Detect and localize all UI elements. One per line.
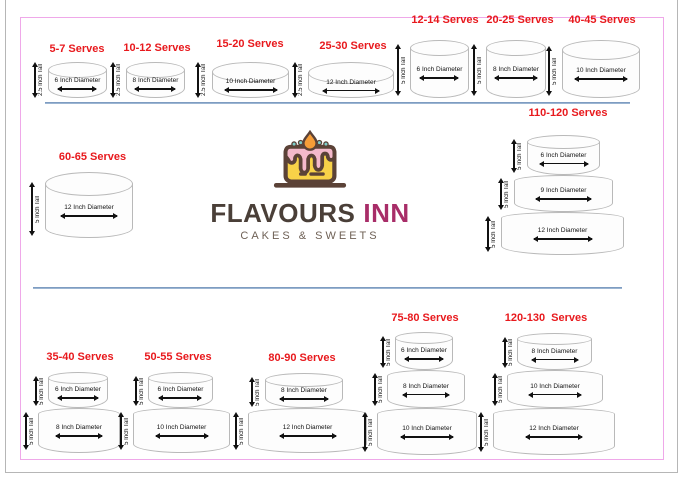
serves-title: 80-90 Serves [260, 352, 344, 364]
height-label: 5 Inch Tall [487, 216, 497, 252]
diameter-label: 6 Inch Diameter [401, 347, 447, 360]
height-arrow-icon [251, 381, 253, 403]
height-text: 2.5 Inch Tall [298, 64, 304, 96]
cake-tier: 8 Inch Diameter [387, 370, 465, 408]
height-arrow-icon [35, 380, 37, 402]
diameter-text: 8 Inch Diameter [403, 383, 449, 391]
cake-tier: 6 Inch Diameter [48, 378, 108, 408]
height-arrow-icon [294, 66, 296, 94]
diameter-arrow-icon [156, 435, 208, 437]
cake-tier: 10 Inch Diameter [562, 50, 640, 98]
diameter-text: 8 Inch Diameter [133, 77, 179, 85]
diameter-text: 6 Inch Diameter [541, 152, 587, 160]
diameter-arrow-icon [159, 397, 201, 399]
diameter-text: 12 Inch Diameter [538, 227, 588, 235]
diameter-label: 6 Inch Diameter [417, 66, 463, 79]
diameter-label: 6 Inch Diameter [158, 386, 204, 399]
logo-berry [317, 141, 321, 145]
serves-title: 15-20 Serves [205, 38, 295, 50]
height-text: 5 Inch Tall [498, 376, 504, 403]
height-arrow-icon [382, 340, 384, 364]
diameter-label: 12 Inch Diameter [534, 227, 592, 240]
diameter-text: 12 Inch Diameter [529, 425, 579, 433]
diameter-label: 12 Inch Diameter [526, 425, 582, 438]
height-text: 5 Inch Tall [378, 376, 384, 403]
diameter-label: 8 Inch Diameter [532, 348, 578, 361]
serves-title: 5-7 Serves [38, 43, 116, 55]
height-label: 5 Inch Tall [251, 377, 261, 407]
logo-berry [324, 142, 328, 146]
diameter-arrow-icon [540, 163, 588, 165]
diameter-text: 6 Inch Diameter [55, 386, 101, 394]
height-arrow-icon [494, 377, 496, 402]
height-arrow-icon [112, 66, 114, 94]
diameter-label: 10 Inch Diameter [575, 67, 627, 80]
height-text: 2.5 Inch Tall [116, 64, 122, 96]
serves-title: 75-80 Serves [383, 312, 467, 324]
diameter-text: 8 Inch Diameter [56, 424, 102, 432]
diameter-text: 10 Inch Diameter [226, 78, 276, 86]
height-text: 5 Inch Tall [239, 418, 245, 445]
serves-title: 20-25 Serves [475, 14, 565, 26]
height-label: 2.5 Inch Tall [294, 62, 304, 98]
height-label: 5 Inch Tall [494, 373, 504, 406]
height-label: 5 Inch Tall [500, 178, 510, 210]
height-text: 5 Inch Tall [491, 221, 497, 248]
diameter-label: 8 Inch Diameter [133, 77, 179, 90]
cake-tier: 10 Inch Diameter [507, 370, 603, 408]
divider-line-top [45, 102, 630, 104]
height-text: 5 Inch Tall [29, 418, 35, 445]
height-arrow-icon [548, 50, 550, 92]
height-text: 5 Inch Tall [552, 58, 558, 85]
height-label: 5 Inch Tall [135, 376, 145, 406]
height-arrow-icon [473, 48, 475, 92]
logo-candle-flame [303, 132, 316, 150]
cake-tier: 8 Inch Diameter [265, 380, 343, 408]
diameter-arrow-icon [58, 397, 98, 399]
diameter-label: 10 Inch Diameter [156, 424, 208, 437]
height-label: 2.5 Inch Tall [34, 62, 44, 98]
height-label: 5 Inch Tall [364, 412, 374, 452]
height-text: 5 Inch Tall [139, 378, 145, 405]
cake-tier: 6 Inch Diameter [395, 338, 453, 370]
flavours-inn-logo-icon [262, 130, 358, 190]
height-arrow-icon [397, 48, 399, 92]
diameter-arrow-icon [58, 88, 96, 90]
diameter-arrow-icon [529, 394, 581, 396]
cake-tier: 8 Inch Diameter [126, 70, 185, 98]
height-text: 5 Inch Tall [508, 339, 514, 366]
serves-title: 40-45 Serves [557, 14, 647, 26]
height-text: 5 Inch Tall [484, 419, 490, 446]
height-label: 5 Inch Tall [548, 46, 558, 96]
height-arrow-icon [364, 416, 366, 448]
diameter-label: 8 Inch Diameter [403, 383, 449, 396]
height-label: 5 Inch Tall [374, 373, 384, 406]
height-arrow-icon [25, 416, 27, 446]
diameter-arrow-icon [575, 78, 627, 80]
height-text: 5 Inch Tall [477, 57, 483, 84]
diameter-text: 8 Inch Diameter [532, 348, 578, 356]
cake-tier: 6 Inch Diameter [148, 378, 213, 408]
height-label: 5 Inch Tall [35, 376, 45, 406]
height-text: 5 Inch Tall [517, 143, 523, 170]
height-arrow-icon [135, 380, 137, 402]
diameter-text: 8 Inch Diameter [281, 387, 327, 395]
height-arrow-icon [500, 182, 502, 206]
cake-tier: 12 Inch Diameter [45, 184, 133, 238]
height-label: 5 Inch Tall [25, 412, 35, 450]
diameter-text: 12 Inch Diameter [326, 79, 376, 87]
brand-name-inn: INN [363, 198, 409, 228]
diameter-arrow-icon [403, 394, 449, 396]
cake-tier: 10 Inch Diameter [377, 408, 477, 455]
diameter-arrow-icon [401, 436, 453, 438]
logo-berry [298, 141, 302, 145]
height-arrow-icon [513, 143, 515, 169]
height-text: 5 Inch Tall [35, 196, 41, 223]
diameter-arrow-icon [526, 436, 582, 438]
diameter-arrow-icon [534, 238, 592, 240]
height-text: 5 Inch Tall [255, 379, 261, 406]
diameter-text: 6 Inch Diameter [401, 347, 447, 355]
serves-title: 35-40 Serves [38, 351, 122, 363]
diameter-text: 6 Inch Diameter [417, 66, 463, 74]
diameter-label: 9 Inch Diameter [536, 187, 591, 200]
brand-tagline: CAKES & SWEETS [200, 230, 420, 242]
diameter-label: 8 Inch Diameter [280, 387, 328, 400]
diameter-label: 10 Inch Diameter [401, 425, 453, 438]
diameter-arrow-icon [323, 90, 379, 92]
diameter-label: 12 Inch Diameter [323, 79, 379, 92]
height-text: 5 Inch Tall [368, 419, 374, 446]
brand-wordmark: FLAVOURSINN [200, 200, 420, 226]
diameter-label: 10 Inch Diameter [529, 383, 581, 396]
serves-title: 25-30 Serves [308, 40, 398, 52]
serves-title: 50-55 Serves [136, 351, 220, 363]
diameter-text: 6 Inch Diameter [55, 77, 101, 85]
height-label: 5 Inch Tall [235, 412, 245, 450]
diameter-label: 10 Inch Diameter [225, 78, 277, 91]
height-arrow-icon [120, 416, 122, 446]
diameter-text: 10 Inch Diameter [402, 425, 452, 433]
diameter-arrow-icon [495, 77, 537, 79]
diameter-label: 12 Inch Diameter [61, 204, 117, 217]
diameter-arrow-icon [225, 89, 277, 91]
diameter-text: 10 Inch Diameter [157, 424, 207, 432]
height-label: 5 Inch Tall [480, 412, 490, 452]
diameter-text: 6 Inch Diameter [158, 386, 204, 394]
cake-tier: 12 Inch Diameter [501, 212, 624, 255]
height-text: 5 Inch Tall [386, 339, 392, 366]
diameter-text: 10 Inch Diameter [576, 67, 626, 75]
cake-tier: 6 Inch Diameter [527, 142, 600, 175]
cake-tier: 10 Inch Diameter [212, 72, 289, 98]
height-label: 5 Inch Tall [397, 44, 407, 96]
cake-tier: 8 Inch Diameter [517, 339, 592, 370]
height-text: 5 Inch Tall [39, 378, 45, 405]
height-arrow-icon [34, 66, 36, 94]
diameter-label: 6 Inch Diameter [540, 152, 588, 165]
cake-tier: 12 Inch Diameter [248, 408, 367, 453]
serves-title: 60-65 Serves [50, 151, 135, 163]
diameter-label: 12 Inch Diameter [280, 424, 336, 437]
diameter-label: 8 Inch Diameter [56, 424, 102, 437]
height-label: 2.5 Inch Tall [112, 62, 122, 98]
diameter-arrow-icon [536, 198, 591, 200]
serves-title: 120-130 Serves [496, 312, 596, 324]
height-arrow-icon [374, 377, 376, 402]
height-text: 5 Inch Tall [124, 418, 130, 445]
height-text: 5 Inch Tall [401, 57, 407, 84]
cake-tier: 6 Inch Diameter [410, 48, 469, 98]
cake-tier: 8 Inch Diameter [486, 48, 546, 98]
cake-serving-size-chart: 5-7 Serves 6 Inch Diameter 2.5 Inch Tall… [0, 0, 684, 478]
height-label: 5 Inch Tall [473, 44, 483, 96]
diameter-label: 8 Inch Diameter [493, 66, 539, 79]
diameter-label: 6 Inch Diameter [55, 77, 101, 90]
diameter-arrow-icon [61, 215, 117, 217]
height-label: 5 Inch Tall [120, 412, 130, 450]
diameter-text: 10 Inch Diameter [530, 383, 580, 391]
diameter-arrow-icon [532, 359, 578, 361]
height-label: 5 Inch Tall [513, 139, 523, 173]
cake-tier: 10 Inch Diameter [133, 408, 230, 453]
diameter-arrow-icon [56, 435, 102, 437]
height-arrow-icon [487, 220, 489, 248]
height-label: 5 Inch Tall [504, 337, 514, 368]
cake-tier: 12 Inch Diameter [308, 73, 394, 98]
height-arrow-icon [235, 416, 237, 446]
cake-tier: 8 Inch Diameter [38, 408, 120, 453]
height-arrow-icon [31, 186, 33, 232]
cake-tier: 9 Inch Diameter [514, 175, 613, 212]
height-text: 5 Inch Tall [504, 181, 510, 208]
diameter-arrow-icon [280, 398, 328, 400]
divider-line-bottom [33, 287, 622, 289]
diameter-arrow-icon [135, 88, 175, 90]
cake-tier: 6 Inch Diameter [48, 70, 107, 98]
serves-title: 10-12 Serves [117, 42, 197, 54]
logo-berry [292, 142, 296, 146]
height-arrow-icon [480, 416, 482, 448]
cake-tier: 12 Inch Diameter [493, 408, 615, 455]
brand-name-flavours: FLAVOURS [210, 198, 355, 228]
height-arrow-icon [504, 341, 506, 364]
diameter-arrow-icon [420, 77, 458, 79]
diameter-text: 12 Inch Diameter [64, 204, 114, 212]
diameter-text: 8 Inch Diameter [493, 66, 539, 74]
height-arrow-icon [197, 66, 199, 94]
diameter-text: 9 Inch Diameter [541, 187, 587, 195]
diameter-label: 6 Inch Diameter [55, 386, 101, 399]
height-label: 5 Inch Tall [31, 182, 41, 236]
diameter-arrow-icon [280, 435, 336, 437]
height-text: 2.5 Inch Tall [38, 64, 44, 96]
diameter-arrow-icon [405, 358, 443, 360]
diameter-text: 12 Inch Diameter [283, 424, 333, 432]
height-text: 2.5 Inch Tall [201, 64, 207, 96]
height-label: 5 Inch Tall [382, 336, 392, 368]
serves-title: 110-120 Serves [518, 107, 618, 119]
height-label: 2.5 Inch Tall [197, 62, 207, 98]
